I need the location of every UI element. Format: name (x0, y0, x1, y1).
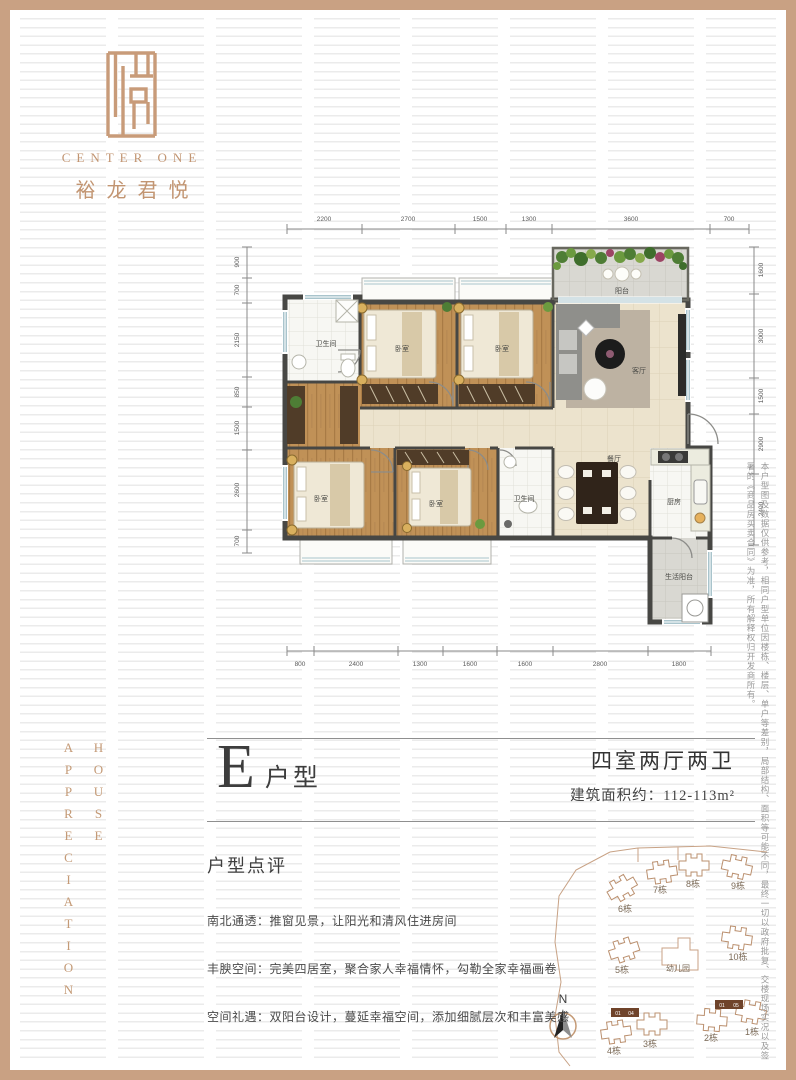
dim-label: 1800 (672, 661, 687, 668)
building-4 (600, 1019, 633, 1045)
building-3 (637, 1013, 667, 1035)
divider-bottom (207, 821, 755, 822)
page: CENTER ONE 裕龙君悦 HOUSE APPRECIATION 本户型图及… (0, 0, 796, 1080)
disclaimer-vertical-text: 本户型图及数据仅供参考，相同户型单位因楼栋、楼层、单户等差别，局部结构、面积等可… (744, 462, 772, 1062)
review-list: 南北通透：推窗见景，让阳光和清风住进房间 丰腴空间：完美四居室，聚合家人幸福情怀… (207, 912, 547, 1056)
dim-label: 2900 (758, 436, 765, 451)
building-label: 3栋 (643, 1038, 657, 1049)
unit-type-letter: E (217, 736, 255, 798)
building-label: 6栋 (618, 903, 632, 914)
building-5 (606, 935, 641, 965)
room-label: 厨房 (667, 497, 681, 506)
building-label: 2栋 (704, 1032, 718, 1043)
kindergarten-label: 幼儿园 (666, 963, 690, 973)
dim-label: 900 (234, 256, 241, 267)
building-7 (646, 859, 679, 885)
side-word-appreciation: APPRECIATION (60, 740, 76, 1004)
dim-label: 2400 (349, 661, 364, 668)
brand-header: CENTER ONE 裕龙君悦 (44, 50, 220, 203)
room-label: 餐厅 (607, 454, 621, 463)
building-label: 9栋 (731, 880, 745, 891)
brand-name-cn: 裕龙君悦 (44, 174, 220, 203)
plant (543, 302, 553, 312)
plant (475, 519, 485, 529)
building-8 (679, 854, 709, 876)
dim-label: 3600 (624, 216, 639, 223)
room-label: 阳台 (615, 286, 629, 295)
review-item: 南北通透：推窗见景，让阳光和清风住进房间 (207, 912, 547, 929)
unit-config: 四室两厅两卫 (570, 745, 735, 775)
side-table (584, 378, 606, 400)
building-label: 5栋 (615, 964, 629, 975)
review-item: 空间礼遇：双阳台设计，蔓延幸福空间，添加细腻层次和丰富美感 (207, 1008, 547, 1025)
dim-label: 2600 (234, 482, 241, 497)
bed (357, 303, 436, 385)
floor-plan: 阳台 客厅 卧室 卧室 卫生间 卧室 卧室 卫生间 餐厅 厨房 生活阳台 220 (234, 216, 765, 668)
unit-number: 05 (733, 1003, 739, 1009)
room-label: 卧室 (314, 494, 328, 503)
room-label: 卫生间 (514, 494, 535, 503)
dim-label: 1600 (758, 262, 765, 277)
building-2 (696, 1008, 727, 1032)
plant (442, 302, 452, 312)
building-label: 7栋 (653, 884, 667, 895)
review-item: 丰腴空间：完美四居室，聚合家人幸福情怀，勾勒全家幸福画卷 (207, 960, 547, 977)
room-label: 卫生间 (316, 339, 337, 348)
dim-label: 700 (234, 284, 241, 295)
hallway-floor (360, 408, 553, 448)
bed (287, 455, 364, 535)
dim-label: 1300 (522, 216, 537, 223)
dim-label: 1600 (518, 661, 533, 668)
dim-label: 3000 (758, 328, 765, 343)
bed (403, 462, 472, 533)
sofa-side (556, 304, 582, 400)
review-heading: 户型点评 (207, 852, 287, 878)
building-label: 8栋 (686, 878, 700, 889)
dim-label: 1500 (758, 388, 765, 403)
dining-set (558, 462, 636, 524)
building-6 (604, 871, 641, 905)
room-label: 生活阳台 (665, 572, 693, 581)
washing-machine (682, 594, 708, 622)
dim-label: 1500 (473, 216, 488, 223)
dim-label: 1600 (463, 661, 478, 668)
dim-label: 700 (724, 216, 735, 223)
tv-cabinet (678, 314, 686, 396)
dim-label: 1300 (413, 661, 428, 668)
unit-type-suffix: 户型 (265, 760, 321, 798)
unit-type-title: E 户型 (217, 736, 321, 798)
north-label: N (559, 992, 568, 1006)
unit-number: 01 (719, 1003, 725, 1009)
dim-label: 2150 (234, 332, 241, 347)
dim-label: 1500 (234, 420, 241, 435)
unit-number: 01 (615, 1011, 621, 1017)
bed (454, 303, 533, 385)
brand-logo-icon (103, 50, 161, 140)
dim-label: 800 (295, 661, 306, 668)
room-label: 卧室 (495, 344, 509, 353)
room-label: 卧室 (395, 344, 409, 353)
unit-number: 04 (628, 1011, 634, 1017)
room-label: 客厅 (632, 366, 646, 375)
dim-label: 850 (234, 386, 241, 397)
dim-label: 700 (234, 535, 241, 546)
side-word-house: HOUSE (90, 740, 106, 850)
dim-label: 2800 (593, 661, 608, 668)
dim-label: 2200 (317, 216, 332, 223)
site-plan: 01 04 01 05 6栋 7栋 8栋 9栋 10栋 5栋 4栋 3栋 2栋 … (550, 846, 768, 1066)
highlighted-units: 01 04 01 05 (611, 1000, 743, 1017)
unit-summary: 四室两厅两卫 建筑面积约：112-113m² (570, 745, 735, 805)
unit-area: 建筑面积约：112-113m² (570, 784, 735, 805)
dim-label: 2700 (401, 216, 416, 223)
brand-name-en: CENTER ONE (44, 150, 220, 166)
building-label: 4栋 (607, 1045, 621, 1056)
plant (290, 396, 302, 408)
room-label: 卧室 (429, 499, 443, 508)
